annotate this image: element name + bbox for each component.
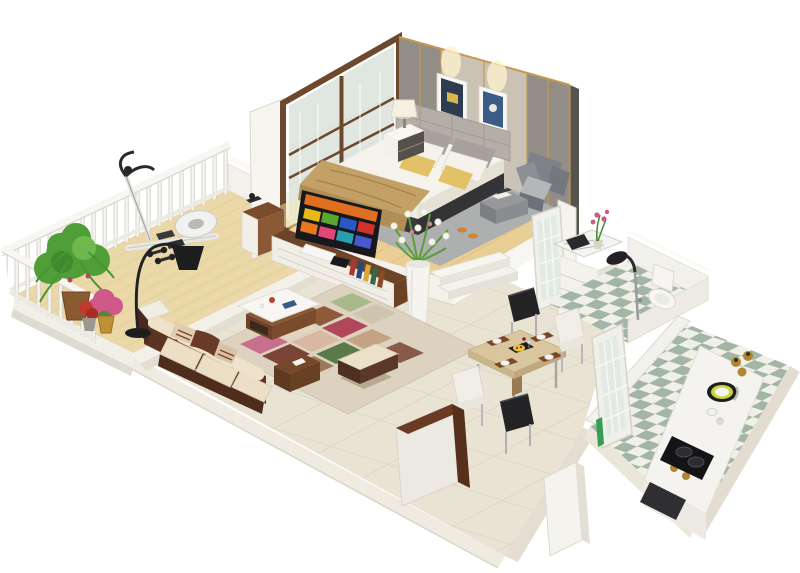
floorplan-scene [0, 0, 800, 573]
wall-spotlight [441, 46, 461, 78]
wall-spotlight [487, 60, 507, 92]
frosted-door-lower [592, 324, 632, 448]
floorplan-render [0, 0, 800, 573]
entry-wall-stub [544, 462, 590, 556]
